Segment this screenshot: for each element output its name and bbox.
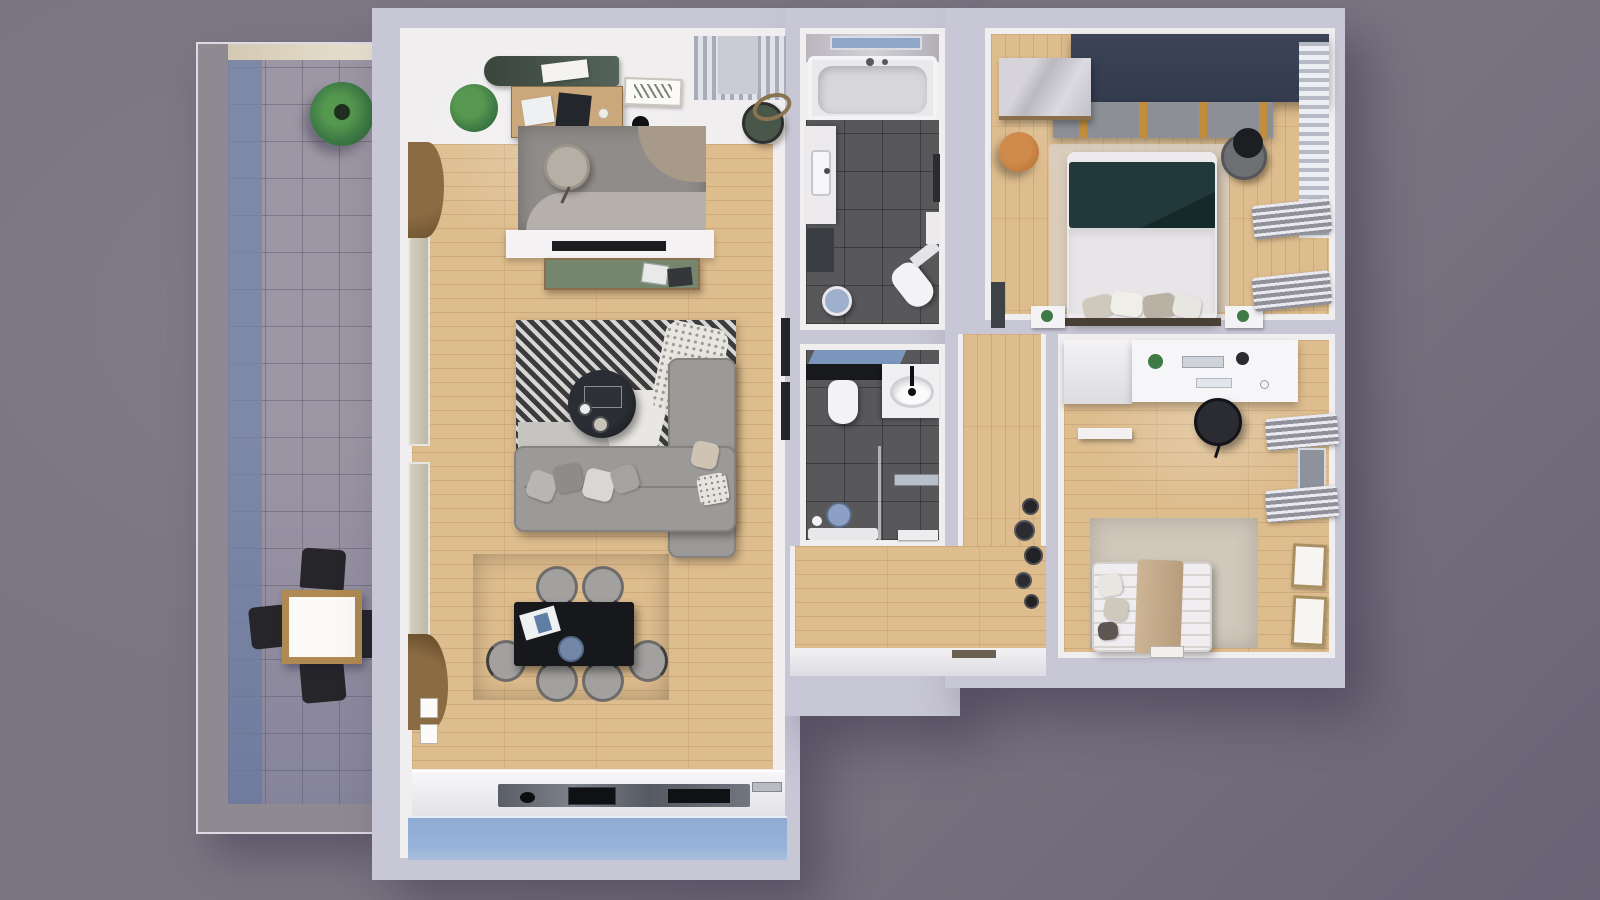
desk-keyboard xyxy=(1182,356,1224,368)
outdoor-chair-south xyxy=(299,660,346,704)
door-panel-1 xyxy=(781,318,790,376)
sink-faucet-black xyxy=(910,366,914,386)
bedroom-master xyxy=(985,28,1335,320)
counter-appliance xyxy=(668,789,730,803)
marble-bench xyxy=(999,58,1091,120)
shower-head xyxy=(826,502,852,528)
bath-faucet-knob xyxy=(882,59,888,65)
picture-frame-1 xyxy=(1291,543,1327,589)
tv xyxy=(552,241,666,251)
armchair-clothes xyxy=(1233,128,1263,158)
bathroom-second xyxy=(800,344,945,546)
white-wardrobe xyxy=(1064,340,1132,404)
navy-wardrobe xyxy=(1071,34,1329,102)
entry-threshold xyxy=(790,648,1046,676)
wall-plate-3 xyxy=(1024,546,1043,565)
balcony-frame-left xyxy=(198,44,228,832)
white-desk xyxy=(1132,340,1298,402)
entry-door-mat xyxy=(952,650,996,658)
counter-tray xyxy=(752,782,782,792)
nightstand-left-plant xyxy=(1041,310,1053,322)
nightstand-right-plant xyxy=(1237,310,1249,322)
outdoor-chair-north xyxy=(300,548,347,591)
headboard xyxy=(1063,318,1221,326)
hallway-vertical xyxy=(958,334,1046,550)
master-tv-panel xyxy=(991,282,1005,328)
dining-chair-sw xyxy=(536,660,578,702)
bath2-black-shelf xyxy=(806,364,894,380)
wall-plate-4 xyxy=(1015,572,1032,589)
master-pillow-2 xyxy=(1109,290,1144,318)
shower-glass xyxy=(878,446,881,540)
bathroom-main xyxy=(800,28,945,330)
bed2-pillow-2 xyxy=(1103,596,1130,621)
living-window-left-2 xyxy=(408,462,430,647)
kitchen-window-band xyxy=(408,816,787,860)
shower-bench xyxy=(894,474,939,486)
wall-plate-2 xyxy=(1014,520,1035,541)
picture-frame-2 xyxy=(1291,595,1328,647)
bed2-office-chair xyxy=(1194,398,1242,446)
living-room xyxy=(400,28,785,858)
bath-mat xyxy=(898,530,938,540)
blue-vase xyxy=(558,636,584,662)
dining-chair-se xyxy=(582,660,624,702)
outdoor-table xyxy=(282,590,362,664)
bathtub-basin xyxy=(818,66,927,114)
wall-art-leaves xyxy=(634,84,672,98)
balcony-frame-bottom xyxy=(198,804,372,832)
floor-plan-render xyxy=(0,0,1600,900)
kitchen-sink xyxy=(520,792,535,803)
master-pillow-3 xyxy=(1141,292,1176,320)
kitchen-wall-frame-1 xyxy=(420,698,438,718)
wall-shelf xyxy=(1078,428,1132,439)
sink-drain xyxy=(908,388,916,396)
tan-pouf xyxy=(999,132,1039,172)
coffee-table-cup xyxy=(578,402,592,416)
vanity-faucet xyxy=(824,168,830,174)
desk-lamp xyxy=(1236,352,1249,365)
bath-faucet xyxy=(866,58,874,66)
bed2-radiator-2 xyxy=(1265,485,1340,523)
wall-plate-5 xyxy=(1024,594,1039,609)
balcony xyxy=(196,42,374,834)
towel-rail xyxy=(933,154,940,202)
desk-paper xyxy=(1196,378,1232,388)
shower-tray xyxy=(808,528,878,540)
office-rug-light-band xyxy=(526,192,706,232)
hallway-lower xyxy=(790,546,1046,650)
bedroom-second xyxy=(1058,334,1335,658)
kitchen-wall-frame-2 xyxy=(420,724,438,744)
balcony-plant-pot xyxy=(334,104,350,120)
sofa-pillow-6 xyxy=(696,472,731,507)
bath-side-cabinet xyxy=(926,212,940,244)
bath-window xyxy=(830,36,922,50)
dining-chair-e xyxy=(628,640,668,682)
open-book xyxy=(521,96,555,126)
magazine-stack-1 xyxy=(641,262,670,285)
living-window-top xyxy=(718,36,758,94)
magazine-stack-2 xyxy=(667,267,693,287)
sofa-pillow-2 xyxy=(551,461,584,494)
bath-base-cabinet xyxy=(806,228,834,272)
shower-ball xyxy=(812,516,822,526)
office-chair xyxy=(544,144,590,190)
floor-book xyxy=(1150,646,1184,658)
cooktop xyxy=(568,787,616,805)
desk-cup xyxy=(598,108,609,119)
desk-mouse xyxy=(1260,380,1269,389)
round-mirror xyxy=(822,286,852,316)
bed2-radiator-1 xyxy=(1265,413,1340,451)
desk-plant xyxy=(1148,354,1163,369)
coffee-table-bowl xyxy=(592,416,609,433)
living-plant xyxy=(450,84,498,132)
bed2-tan-runner xyxy=(1134,559,1183,655)
bed2-pillow-3 xyxy=(1097,621,1119,641)
wall-plate-1 xyxy=(1022,498,1039,515)
door-panel-2 xyxy=(781,382,790,440)
toilet-second xyxy=(828,380,858,424)
